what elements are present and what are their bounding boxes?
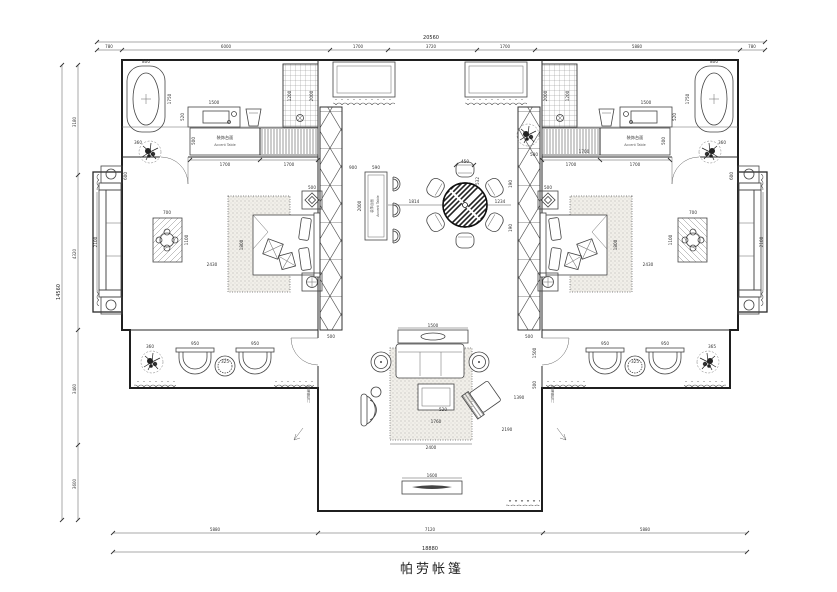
dim-tub-width-l: 800 [142, 59, 150, 64]
dim-wing-chair1-r: 950 [661, 341, 669, 346]
dim-vanity-depth-l: 520 [180, 113, 185, 121]
dim-wing-chair2-r: 950 [601, 341, 609, 346]
accent-table-label-en-l: Accent Table [214, 143, 235, 147]
accent-table-label-en-r: Accent Table [624, 143, 645, 147]
left-suite [94, 60, 342, 388]
wing-plant [141, 351, 163, 373]
dim-top-s3: 1700 [353, 44, 364, 49]
dim-top-total: 20560 [423, 35, 439, 41]
dim-top-s6: 5880 [632, 44, 643, 49]
door-arrow-left [294, 428, 303, 440]
porch-curtain-top [94, 174, 99, 190]
dim-shower-h-r: 2000 [543, 90, 548, 101]
dim-bed-gap-l: 2430 [207, 262, 218, 267]
accent-table-label-cn-l: 装饰台面 [217, 134, 234, 141]
bathtub [127, 66, 165, 132]
dim-bar-offset: 900 [349, 165, 357, 170]
dim-wing-chair2-l: 950 [251, 341, 259, 346]
dim-bar-width: 590 [372, 165, 380, 170]
dim-left-s3: 3460 [72, 383, 77, 394]
dim-coffee-h-r: 1100 [668, 234, 673, 245]
dimension-bottom: 5880 7120 5880 18880 [111, 527, 749, 554]
drawing-title: 帕劳帐篷 [400, 561, 464, 577]
dim-plant-r: 360 [718, 140, 726, 145]
dim-accent1-l: 1700 [220, 162, 231, 167]
dining-table [443, 183, 487, 227]
top-panel-left [333, 62, 395, 97]
dim-top-s5: 1700 [500, 44, 511, 49]
dim-niche-w: 500 [530, 152, 538, 157]
dim-accent1-r: 1700 [630, 162, 641, 167]
dim-chair-d: 532 [475, 177, 480, 185]
dim-chair-w: 450 [461, 159, 469, 164]
dim-tub-length-r: 1750 [685, 93, 690, 104]
living-sofa [396, 344, 464, 378]
bar-stools [393, 177, 400, 243]
dim-left-s1: 3180 [72, 116, 77, 127]
accent-table-label-cn-r: 装饰台面 [627, 134, 644, 141]
lattice-screen [320, 107, 342, 330]
dim-shower-w-r: 1200 [565, 90, 570, 101]
dim-dining-left: 1814 [409, 199, 420, 204]
dim-top-s2: 6000 [221, 44, 232, 49]
dim-accent2-l: 1700 [284, 162, 295, 167]
door-note-right: 玻璃推拉门 [550, 384, 554, 403]
dim-bed-w-r: 1800 [613, 239, 618, 250]
dim-accent2-r: 1700 [566, 162, 577, 167]
console-behind-sofa [398, 330, 468, 343]
dim-rug-w: 2400 [426, 445, 437, 450]
bar-label-cn: 装饰台面 [369, 199, 374, 213]
accent-table-counter [190, 128, 318, 155]
dim-wing-table-l: 325 [221, 359, 229, 364]
dim-wing-h1: 1500 [532, 347, 537, 358]
dim-niche-seg2: 190 [508, 224, 513, 232]
bed [253, 213, 320, 277]
dim-niche-seg1: 190 [508, 180, 513, 188]
dim-bedroom-door-r: 1700 [579, 149, 590, 154]
right-suite [518, 60, 766, 388]
bottom-curtain-right [506, 500, 540, 506]
top-panel-right [465, 62, 527, 97]
dim-top-s1: 780 [105, 44, 113, 49]
living-coffee-table [418, 384, 454, 410]
door-arrow-right [557, 428, 566, 440]
dim-tub-width-r: 800 [710, 59, 718, 64]
small-side-table [371, 387, 381, 397]
dim-porch-sofa-r: 2100 [759, 236, 764, 247]
porch-side-tables [101, 166, 122, 314]
dim-tv: 1600 [427, 473, 438, 478]
dim-wing-plant-r: 365 [708, 344, 716, 349]
dim-lattice-r: 500 [525, 334, 533, 339]
dimension-top: 20560 780 6000 1700 3720 1700 5880 780 [95, 35, 767, 52]
dim-left-s4: 3600 [72, 478, 77, 489]
bar-label-en: Accent Table [376, 195, 380, 216]
dim-bottom-total: 18880 [422, 546, 438, 552]
dim-rug-diag: 2190 [502, 427, 513, 432]
dim-vanity-l: 1500 [209, 100, 220, 105]
dim-porch-sofa-l: 2100 [93, 236, 98, 247]
dim-coffee2-w: 1760 [431, 419, 442, 424]
dim-bed-gap-r: 2430 [643, 262, 654, 267]
porch-sofa [99, 183, 121, 297]
dim-bottom-s3: 5880 [640, 527, 651, 532]
dim-bar-length: 2000 [357, 200, 362, 211]
wing-armchair-1 [176, 348, 214, 374]
dim-nightstand-l: 500 [308, 185, 316, 190]
dim-chair-gap: 1390 [514, 395, 525, 400]
vanity-stool [246, 109, 261, 126]
curtain-under-panel-left [333, 99, 395, 105]
dim-porch-table-r: 600 [729, 172, 734, 180]
dim-dining-right: 1234 [495, 199, 506, 204]
floor-plan-drawing: 20560 780 6000 1700 3720 1700 5880 780 1… [0, 0, 837, 592]
dim-wing-h2: 500 [532, 381, 537, 389]
dim-vanity-r: 1500 [641, 100, 652, 105]
dim-console: 1500 [428, 323, 439, 328]
tv-console [402, 481, 462, 494]
lounge-chair [361, 394, 376, 426]
dim-bed-w-l: 1800 [239, 239, 244, 250]
dim-plant-l: 360 [134, 140, 142, 145]
dim-vanity-depth-r: 520 [672, 113, 677, 121]
pouf-left [371, 352, 391, 372]
dim-accent-depth-l: 500 [191, 137, 196, 145]
dim-porch-table-l: 600 [123, 172, 128, 180]
dim-bottom-s1: 5880 [210, 527, 221, 532]
dim-wing-table-r: 325 [631, 359, 639, 364]
pouf-right [469, 352, 489, 372]
dim-top-s4: 3720 [426, 44, 437, 49]
nightstand-top [302, 191, 322, 209]
vanity [188, 107, 240, 127]
bedroom-coffee-table [153, 218, 182, 262]
dim-shower-h-l: 2000 [309, 90, 314, 101]
dim-coffee2-d: 520 [439, 407, 447, 412]
dim-left-total: 14560 [56, 284, 62, 300]
dim-top-s7: 780 [748, 44, 756, 49]
dim-tub-length-l: 1750 [167, 93, 172, 104]
dim-coffee-h-l: 1100 [184, 234, 189, 245]
dim-left-s2: 4320 [72, 248, 77, 259]
dim-wing-chair1-l: 950 [191, 341, 199, 346]
bath-plant [139, 141, 161, 163]
dim-bottom-s2: 7120 [425, 527, 436, 532]
porch-curtain-bottom [94, 290, 99, 306]
floor-plan-canvas: 20560 780 6000 1700 3720 1700 5880 780 1… [0, 0, 837, 592]
door-note-left: 玻璃推拉门 [306, 384, 310, 403]
wing-curtain-left [134, 381, 176, 387]
dim-accent-depth-r: 500 [661, 137, 666, 145]
curtain-under-panel-right [465, 99, 527, 105]
dim-lattice-l: 500 [327, 334, 335, 339]
dimension-left: 14560 3180 4320 3460 3600 [56, 63, 80, 522]
dim-shower-w-l: 1200 [287, 90, 292, 101]
dim-coffee-w-l: 700 [163, 210, 171, 215]
tv-icon [412, 485, 452, 489]
dim-nightstand-r: 500 [544, 185, 552, 190]
wing-armchair-2 [236, 348, 274, 374]
dim-coffee-w-r: 700 [689, 210, 697, 215]
dim-wing-plant-l: 360 [146, 344, 154, 349]
